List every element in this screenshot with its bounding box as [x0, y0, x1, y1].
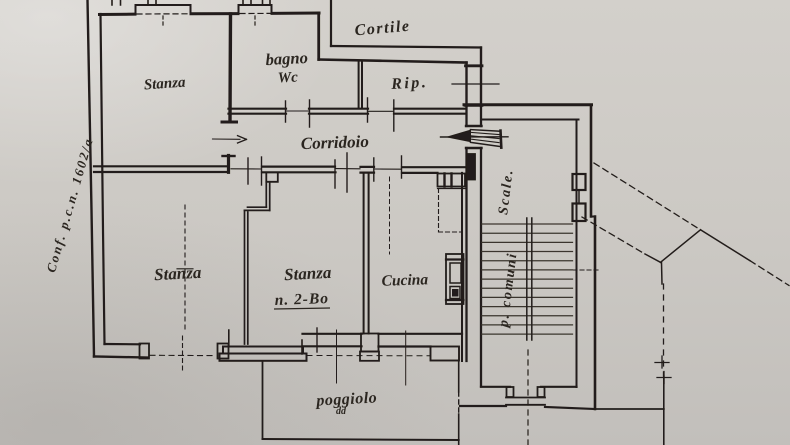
svg-text:Cucina: Cucina [381, 271, 428, 290]
svg-text:Corridoio: Corridoio [300, 132, 369, 153]
svg-text:Rip.: Rip. [390, 74, 429, 93]
svg-text:Stanza: Stanza [154, 263, 203, 284]
svg-text:Stanza: Stanza [143, 75, 186, 94]
svg-text:Wc: Wc [277, 69, 298, 86]
svg-text:n. 2-Bo: n. 2-Bo [274, 290, 329, 309]
svg-text:bagno: bagno [265, 48, 308, 69]
svg-text:Stanza: Stanza [284, 263, 333, 284]
svg-text:dd: dd [336, 406, 347, 417]
